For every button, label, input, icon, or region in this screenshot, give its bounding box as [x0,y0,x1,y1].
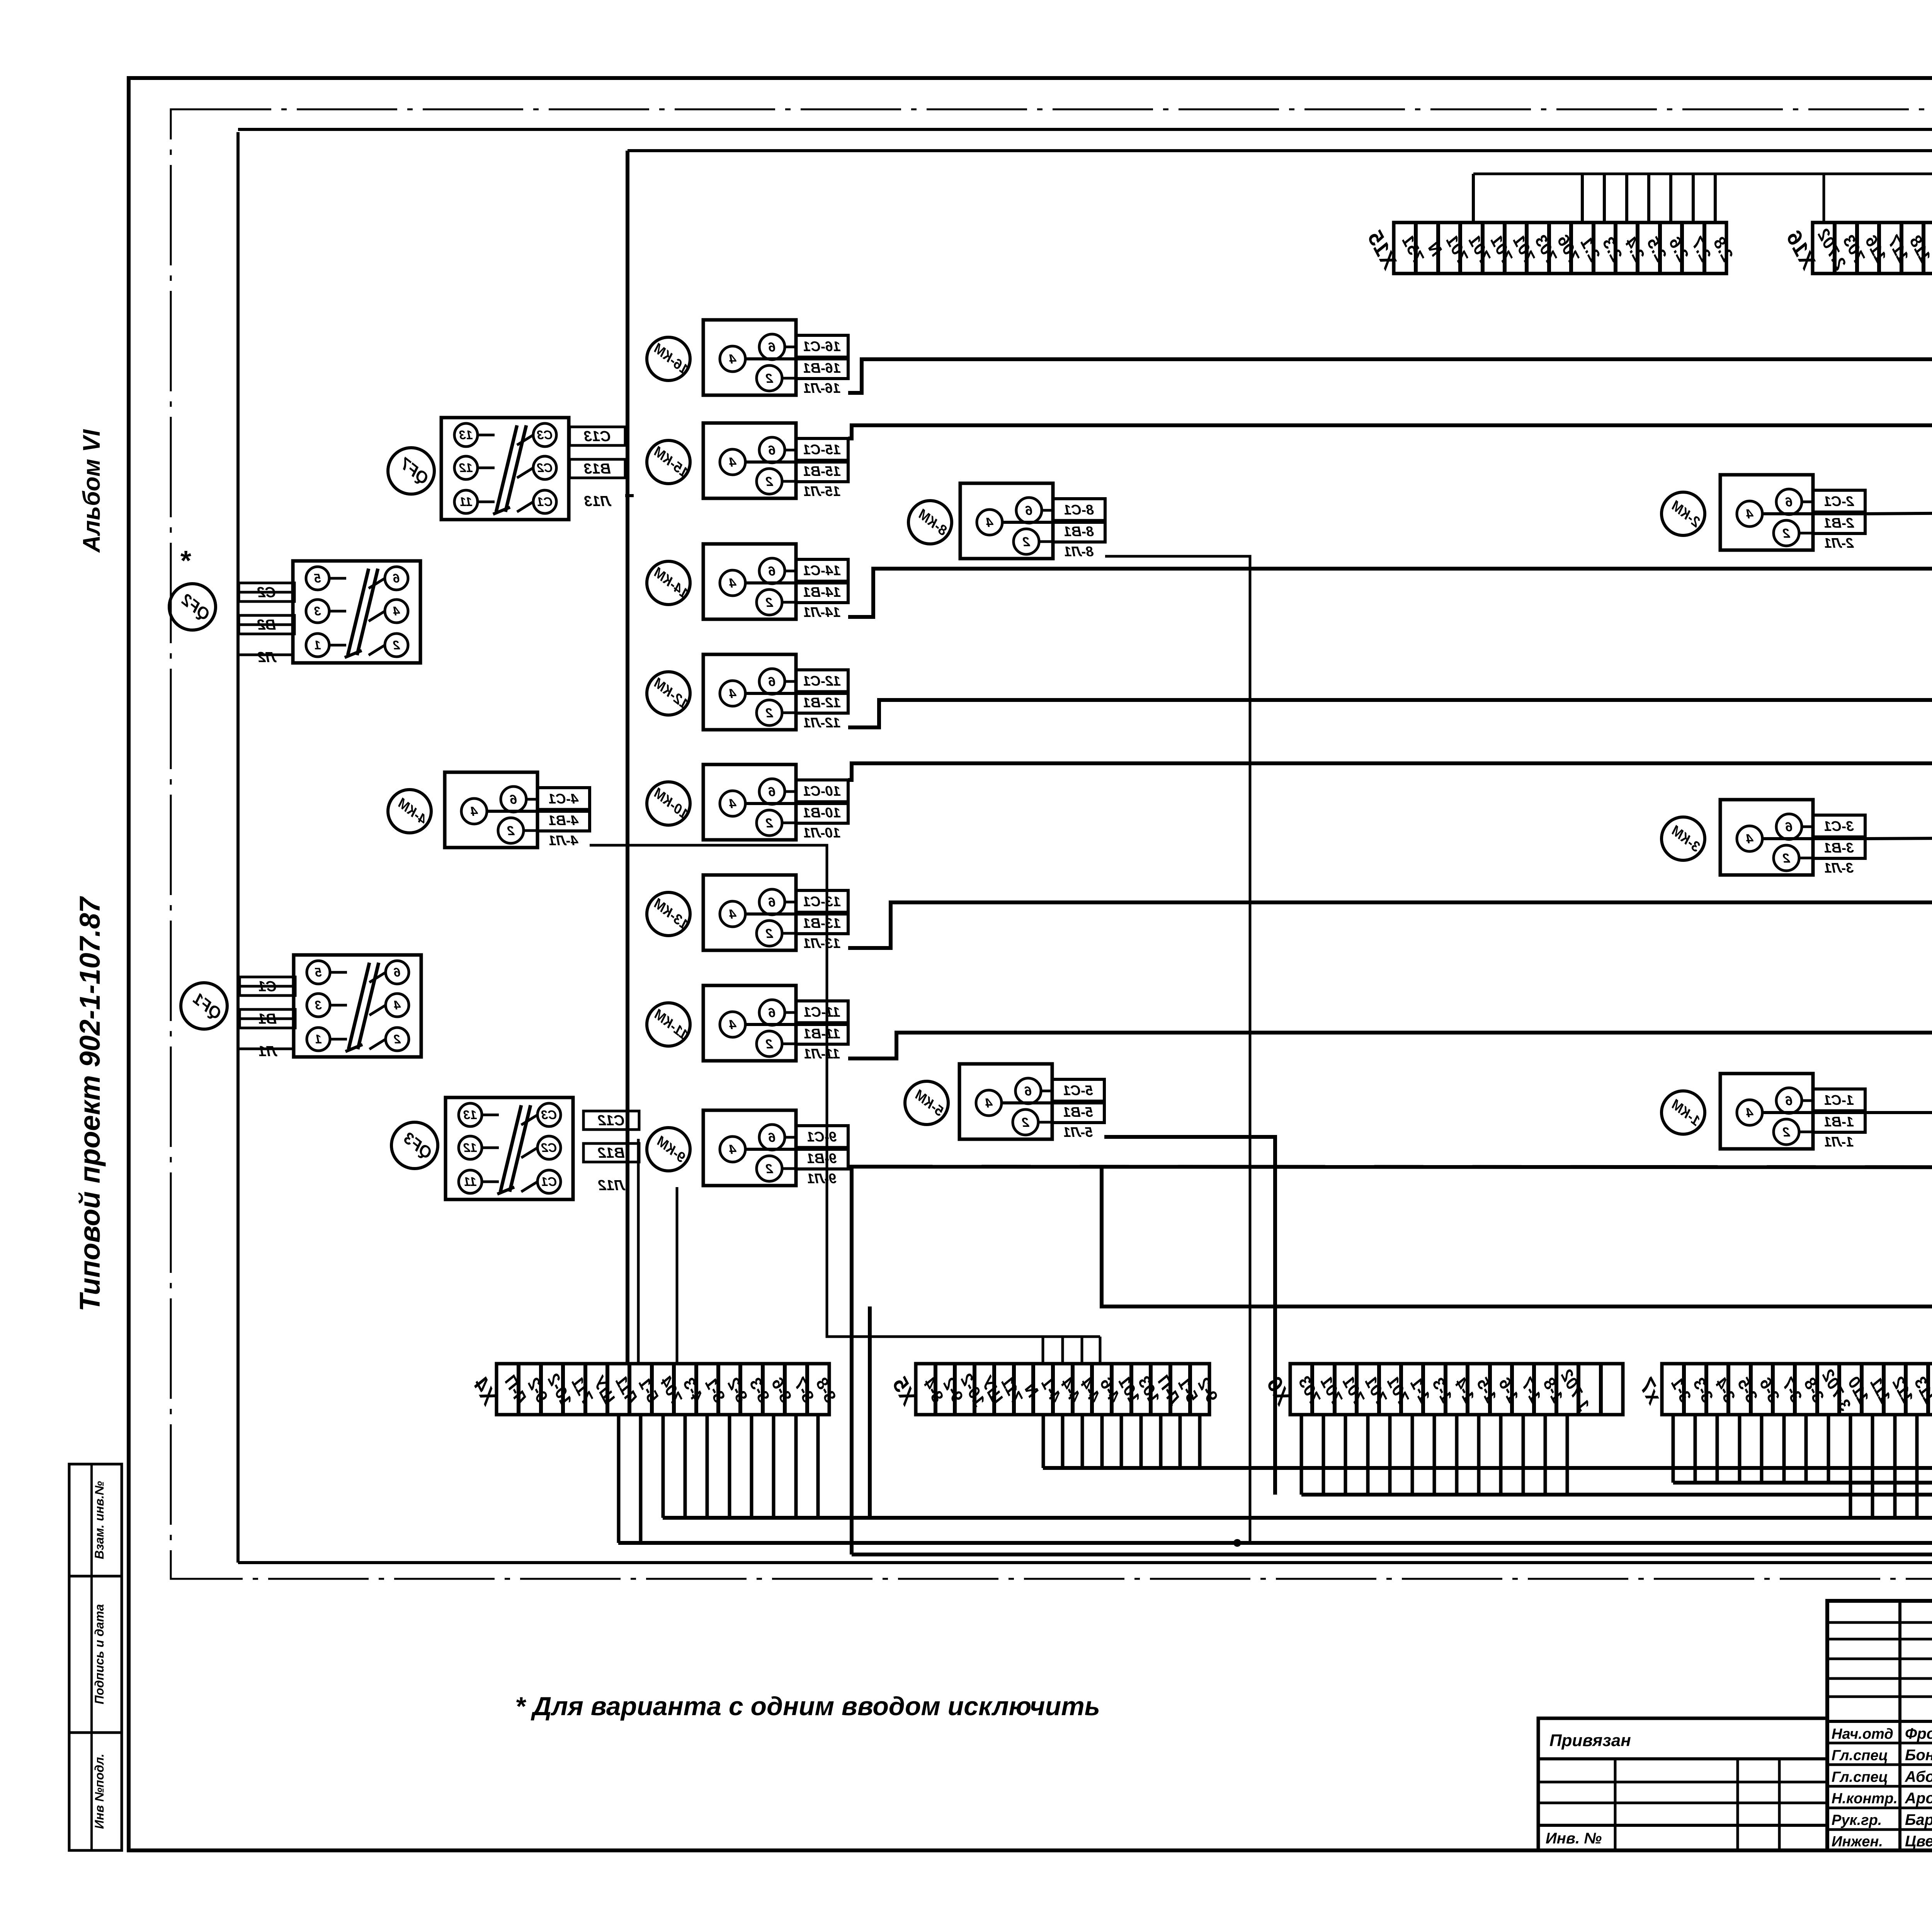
svg-text:5-С1: 5-С1 [1063,1082,1093,1098]
svg-text:Инжен.: Инжен. [1832,1834,1883,1850]
svg-text:6: 6 [768,1006,776,1020]
svg-text:9-С1: 9-С1 [807,1129,837,1145]
svg-text:6: 6 [394,965,401,979]
svg-text:4-Л1: 4-Л1 [549,832,579,848]
svg-text:14-С1: 14-С1 [803,562,841,578]
svg-text:Взам. инв.№: Взам. инв.№ [92,1481,106,1559]
svg-text:11: 11 [464,1175,476,1189]
svg-text:2-В1: 2-В1 [1824,515,1854,531]
svg-text:С12: С12 [598,1113,625,1129]
svg-text:15-В1: 15-В1 [803,463,841,479]
svg-text:12-В1: 12-В1 [803,695,841,710]
svg-text:С13: С13 [584,428,611,445]
svg-text:Гл.спец: Гл.спец [1832,1748,1888,1764]
svg-text:С1: С1 [541,1175,557,1189]
svg-text:2: 2 [1782,1125,1790,1140]
svg-text:12-Л1: 12-Л1 [803,715,841,731]
svg-text:4: 4 [729,352,736,367]
svg-text:5: 5 [315,965,322,979]
svg-text:6: 6 [768,785,776,799]
svg-text:3-В1: 3-В1 [1824,840,1854,856]
svg-text:12-С1: 12-С1 [803,673,841,689]
svg-text:1-С1: 1-С1 [1824,1092,1854,1108]
svg-text:2: 2 [765,1037,773,1052]
svg-text:1: 1 [314,638,321,652]
svg-text:Л2: Л2 [257,649,277,666]
svg-text:3: 3 [315,998,322,1012]
svg-text:13-В1: 13-В1 [803,915,841,931]
svg-text:2: 2 [1782,851,1790,866]
svg-text:4: 4 [729,455,736,470]
svg-text:Л1: Л1 [258,1043,277,1060]
svg-text:6: 6 [509,792,517,807]
svg-text:Абозная: Абозная [1905,1768,1932,1785]
svg-text:16-В1: 16-В1 [803,360,841,376]
svg-text:3-Л1: 3-Л1 [1824,860,1854,876]
svg-text:6: 6 [768,895,776,910]
svg-text:Цветочкина: Цветочкина [1905,1833,1932,1850]
svg-text:4: 4 [729,797,736,811]
svg-text:2: 2 [765,595,773,610]
svg-text:Привязан: Привязан [1549,1731,1631,1750]
svg-text:С3: С3 [541,1108,557,1122]
svg-text:11: 11 [459,495,472,509]
svg-text:С3: С3 [537,428,553,442]
svg-text:6: 6 [768,1130,776,1145]
svg-text:Инв. №: Инв. № [1546,1830,1602,1847]
svg-text:6: 6 [1025,503,1032,518]
svg-text:13: 13 [463,1108,477,1122]
svg-text:2: 2 [765,706,773,720]
svg-text:6: 6 [1785,820,1793,834]
svg-text:8-В1: 8-В1 [1064,523,1094,539]
svg-text:10-Л1: 10-Л1 [803,825,841,841]
svg-text:4: 4 [729,576,736,591]
svg-text:*: * [179,545,191,576]
svg-text:5-В1: 5-В1 [1063,1104,1093,1120]
svg-text:15-Л1: 15-Л1 [803,483,841,499]
svg-text:4: 4 [393,604,400,618]
svg-text:3-С1: 3-С1 [1824,818,1854,834]
svg-text:1: 1 [315,1032,322,1046]
svg-text:2: 2 [765,1162,773,1176]
svg-text:4: 4 [985,1096,993,1111]
svg-text:1-В1: 1-В1 [1824,1114,1854,1130]
svg-text:4: 4 [1746,832,1753,846]
svg-text:6: 6 [768,443,776,458]
svg-text:Альбом VI: Альбом VI [78,429,105,553]
svg-text:Бондарь: Бондарь [1905,1747,1932,1764]
svg-text:Н.контр.: Н.контр. [1832,1791,1898,1807]
svg-text:2: 2 [393,638,400,652]
svg-text:13-Л1: 13-Л1 [803,935,841,951]
svg-text:4: 4 [394,998,401,1012]
svg-text:2-Л1: 2-Л1 [1824,535,1854,551]
svg-text:6: 6 [1785,1094,1793,1108]
svg-text:3: 3 [314,604,321,618]
svg-text:2: 2 [765,474,773,489]
svg-text:4-С1: 4-С1 [548,791,579,807]
svg-text:С2: С2 [541,1141,557,1155]
svg-text:5: 5 [314,571,321,585]
svg-text:2: 2 [394,1032,401,1046]
svg-text:Аронсон: Аронсон [1905,1790,1932,1807]
svg-text:Фролов: Фролов [1905,1725,1932,1742]
svg-text:9-В1: 9-В1 [807,1150,837,1166]
svg-text:10-В1: 10-В1 [803,805,841,821]
svg-text:В13: В13 [584,461,611,477]
svg-text:В12: В12 [598,1145,625,1161]
svg-text:8-С1: 8-С1 [1064,502,1094,518]
svg-text:8-Л1: 8-Л1 [1064,544,1094,559]
svg-text:5-Л1: 5-Л1 [1063,1124,1093,1140]
svg-text:11-В1: 11-В1 [803,1026,840,1041]
svg-text:12: 12 [459,461,473,475]
svg-text:Барчан: Барчан [1905,1811,1932,1828]
svg-text:11-Л1: 11-Л1 [804,1046,840,1062]
svg-text:13-С1: 13-С1 [803,894,841,909]
svg-text:14-В1: 14-В1 [803,584,841,600]
svg-text:2: 2 [1022,535,1030,549]
svg-text:1-Л1: 1-Л1 [1824,1134,1854,1150]
svg-text:10-С1: 10-С1 [803,783,841,799]
svg-text:4: 4 [986,515,993,530]
svg-text:6: 6 [1024,1084,1032,1099]
svg-text:Рук.гр.: Рук.гр. [1832,1812,1882,1828]
svg-text:13: 13 [459,428,473,442]
svg-text:Л12: Л12 [598,1177,626,1194]
svg-text:16-С1: 16-С1 [803,338,841,354]
svg-text:Л13: Л13 [584,493,612,510]
svg-text:4: 4 [729,686,736,701]
svg-text:16-Л1: 16-Л1 [803,380,841,396]
svg-text:С2: С2 [537,461,553,475]
svg-text:Подпись и дата: Подпись и дата [92,1604,106,1704]
svg-text:4: 4 [729,907,736,922]
svg-text:4: 4 [1746,1106,1753,1120]
svg-text:4: 4 [729,1142,736,1157]
svg-text:4-В1: 4-В1 [548,812,579,828]
svg-text:11-С1: 11-С1 [803,1004,840,1020]
svg-text:4: 4 [1746,507,1753,522]
svg-text:2: 2 [765,926,773,941]
svg-text:14-Л1: 14-Л1 [803,604,841,620]
svg-text:12: 12 [463,1141,477,1155]
svg-text:2: 2 [507,824,515,838]
svg-text:9-Л1: 9-Л1 [807,1171,837,1186]
svg-text:6: 6 [768,564,776,579]
svg-text:Гл.спец: Гл.спец [1832,1769,1888,1785]
svg-text:2: 2 [1782,526,1790,541]
svg-text:15-С1: 15-С1 [803,442,841,457]
svg-text:6: 6 [393,571,400,585]
svg-text:6: 6 [1785,495,1793,510]
svg-text:2-С1: 2-С1 [1824,493,1854,509]
svg-text:2: 2 [1022,1115,1029,1130]
svg-text:* Для варианта с одним вво: * Для варианта с одним вводом исключить [515,1692,1100,1721]
svg-text:Типовой проект 902-1-107.87: Типовой проект 902-1-107.87 [74,895,106,1312]
svg-text:6: 6 [768,674,776,689]
svg-text:С1: С1 [537,495,553,509]
svg-text:6: 6 [768,340,776,355]
svg-text:2: 2 [765,816,773,831]
svg-text:Нач.отд: Нач.отд [1832,1726,1893,1742]
svg-text:4: 4 [470,804,478,819]
svg-text:4: 4 [729,1018,736,1032]
svg-text:Инв №подл.: Инв №подл. [92,1754,106,1829]
svg-text:2: 2 [765,371,773,386]
